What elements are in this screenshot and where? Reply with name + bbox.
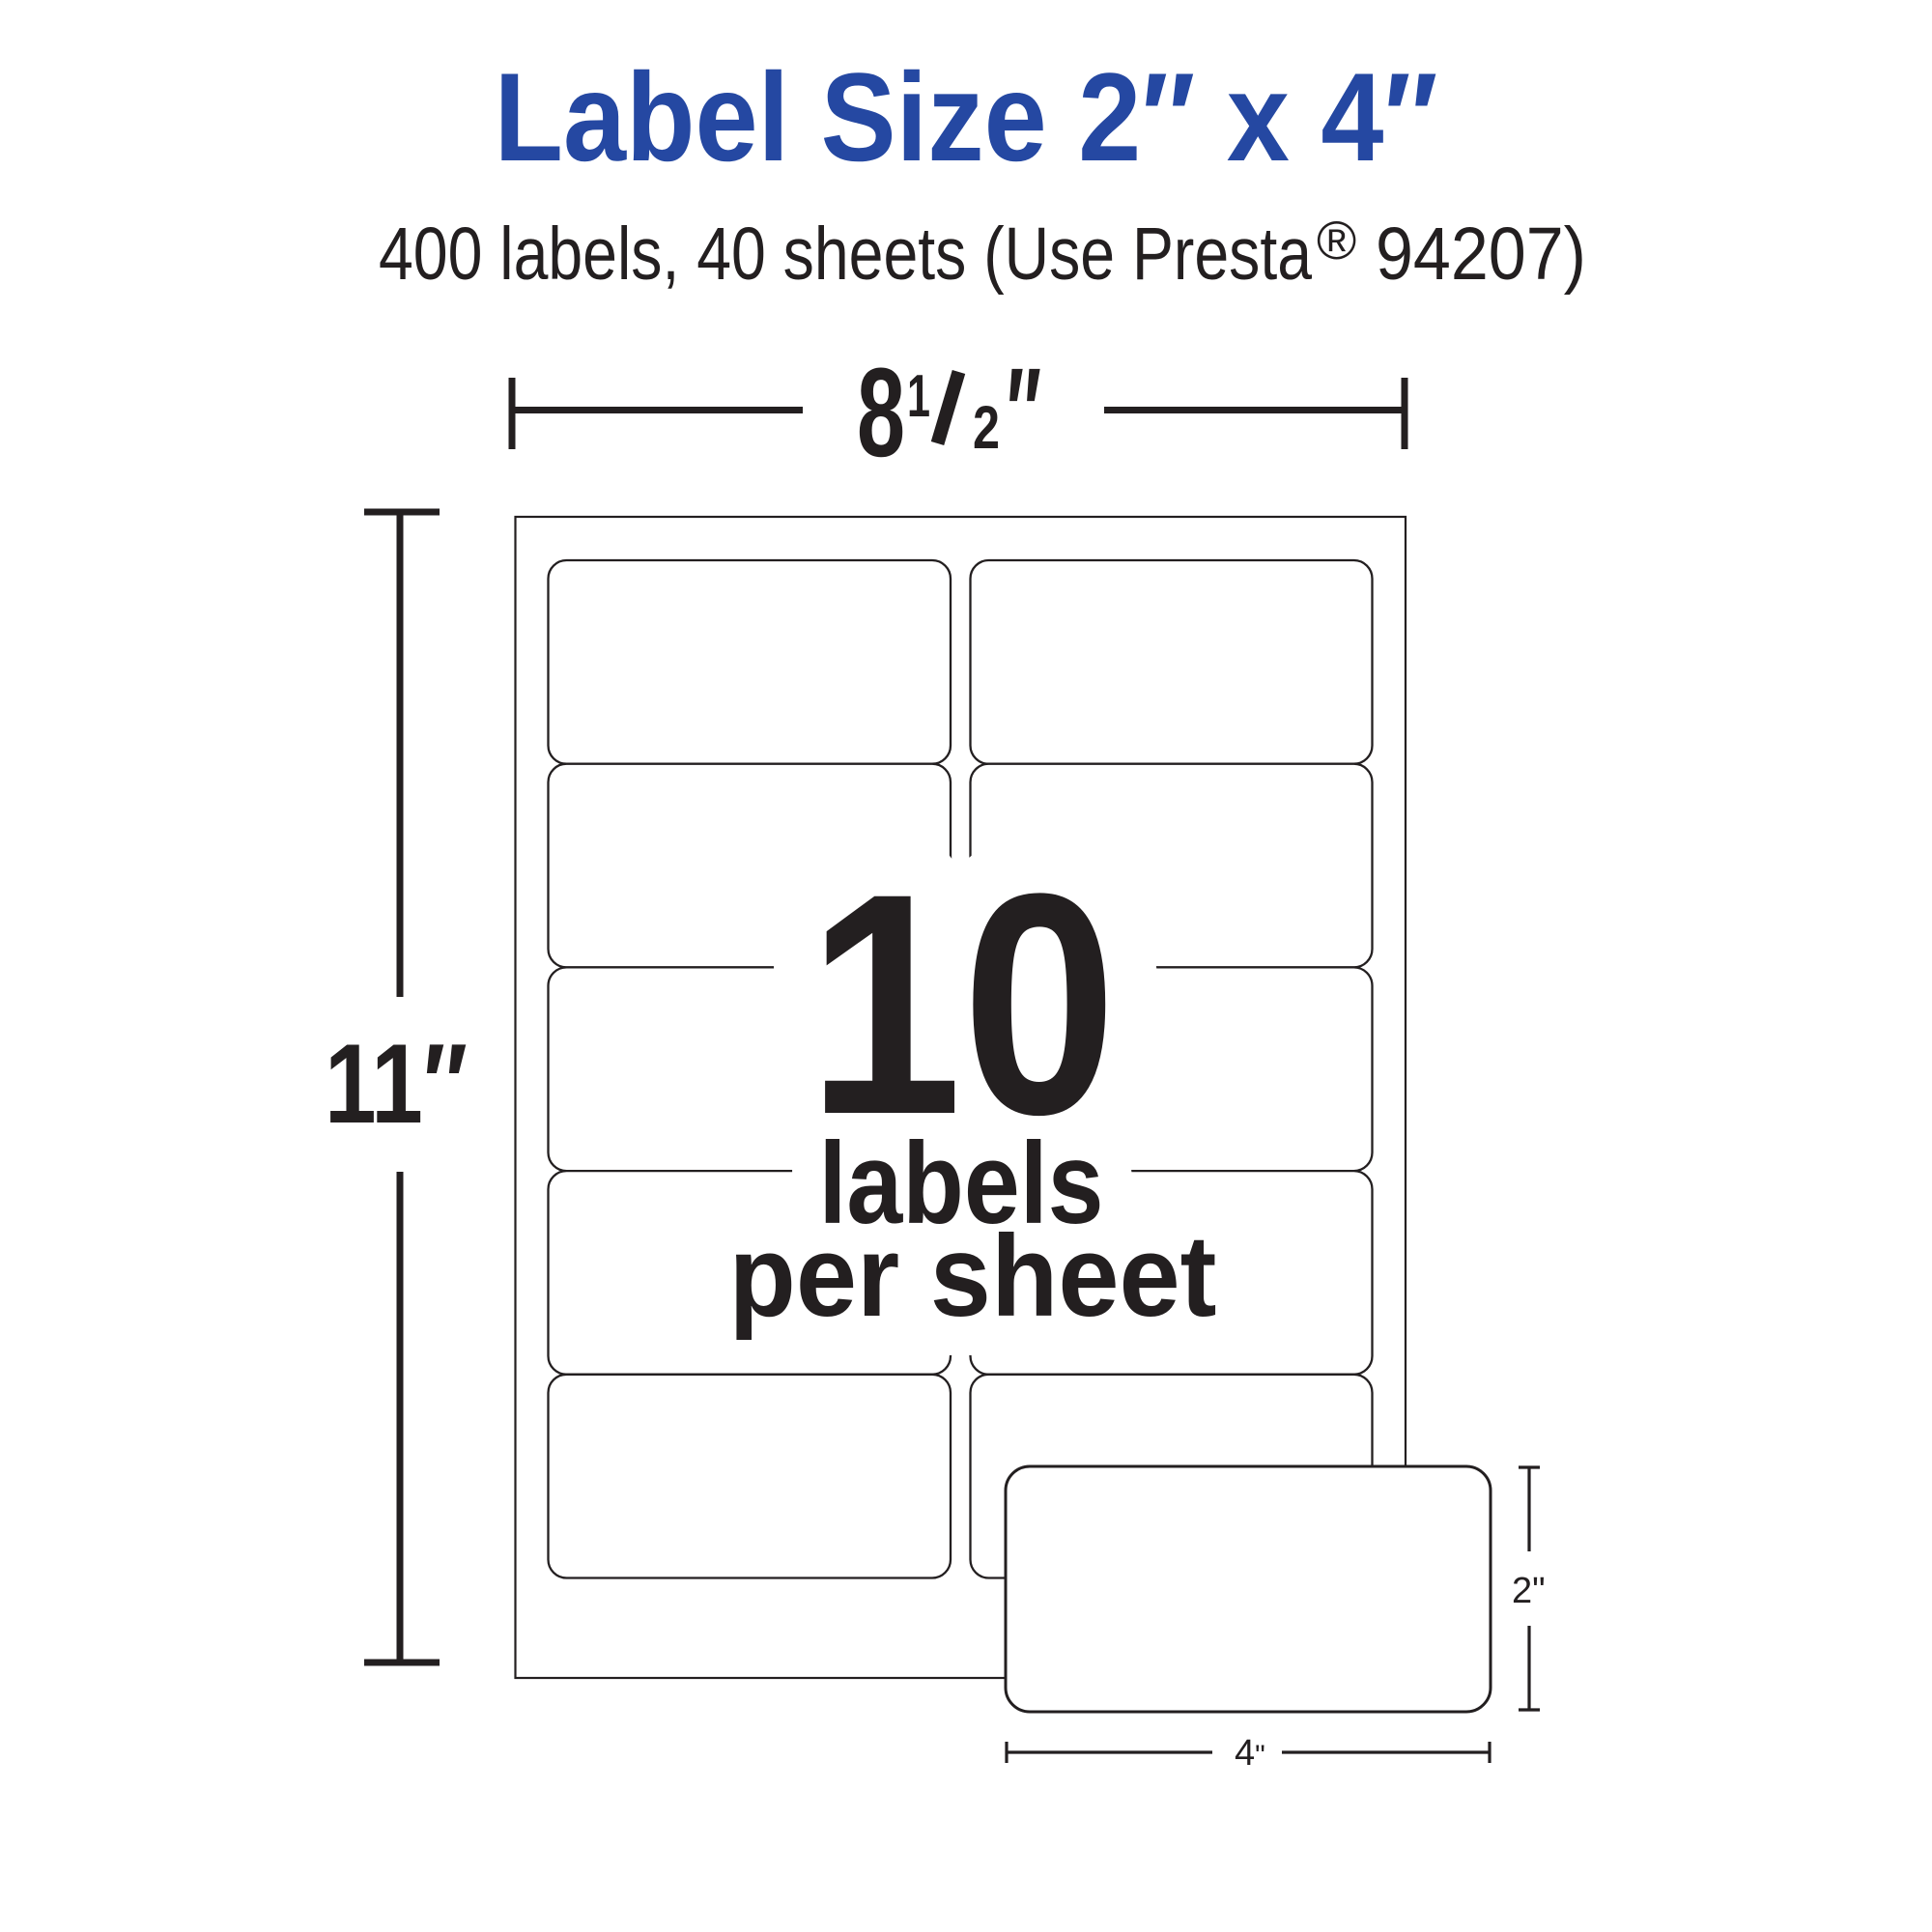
- svg-text:4": 4": [1235, 1733, 1265, 1774]
- svg-text:per sheet: per sheet: [729, 1211, 1217, 1341]
- svg-text:1: 1: [907, 363, 930, 430]
- svg-text:11″: 11″: [325, 1020, 468, 1147]
- svg-text:94207): 94207): [1376, 213, 1586, 296]
- svg-text:″: ″: [1007, 341, 1041, 483]
- svg-text:8: 8: [857, 341, 905, 483]
- svg-text:®: ®: [1317, 210, 1356, 270]
- svg-text:400 labels, 40 sheets (Use Pre: 400 labels, 40 sheets (Use Presta: [379, 213, 1312, 296]
- svg-text:Label Size 2″ x 4″: Label Size 2″ x 4″: [495, 46, 1438, 187]
- svg-text:2": 2": [1512, 1571, 1546, 1611]
- svg-text:2: 2: [973, 394, 1000, 462]
